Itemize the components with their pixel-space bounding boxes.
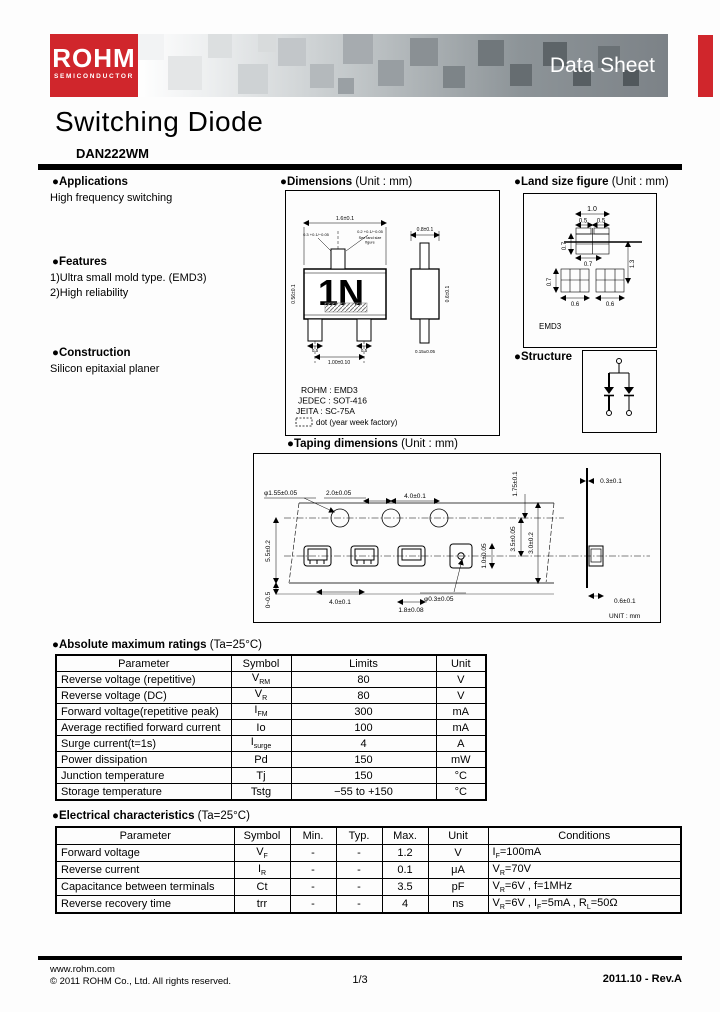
table-cell: Surge current(t=1s) [56, 736, 231, 752]
dim-label: 1.3 [630, 259, 636, 268]
structure-heading: ●Structure [514, 351, 572, 363]
abs-max-heading: ●Absolute maximum ratings (Ta=25°C) [52, 639, 262, 651]
red-accent-bar [698, 35, 713, 97]
dot-note: dot (year week factory) [316, 418, 398, 427]
dimensions-heading: ●Dimensions (Unit : mm) [280, 176, 412, 188]
land-pattern-drawing: 1.0 0.5 0.5 0.7 1.3 0.7 0.7 0.6 0.6 EMD3 [524, 194, 656, 347]
applications-heading: ●Applications [52, 176, 128, 188]
banner-square [343, 34, 373, 64]
dim-label: 0.6 [606, 302, 615, 308]
column-header: Min. [290, 827, 336, 845]
table-cell: VR=70V [488, 862, 681, 879]
unit-note: UNIT : mm [609, 613, 640, 620]
table-row: Reverse voltage (DC)VR80V [56, 688, 486, 704]
banner-square [138, 34, 164, 60]
table-cell: A [436, 736, 486, 752]
dim-label: 1.8±0.08 [398, 607, 424, 614]
dim-label: 0.6±0.1 [614, 598, 636, 605]
table-cell: ns [428, 896, 488, 914]
diode-symbol [604, 387, 614, 394]
dimensions-box: 1N 1.6±0.1 0.3 +0.1/−0.05 [285, 190, 500, 436]
dim-note: See land size [359, 236, 382, 240]
dim-label: 0.5 [312, 348, 319, 353]
column-header: Conditions [488, 827, 681, 845]
land-dim-lines [556, 214, 628, 298]
table-cell: - [336, 845, 382, 862]
table-cell: VF [234, 845, 290, 862]
column-header: Parameter [56, 827, 234, 845]
dot-legend-swatch [296, 418, 312, 426]
dim-label: 0.7 [547, 277, 553, 286]
table-cell: 150 [291, 752, 436, 768]
table-cell: trr [234, 896, 290, 914]
dim-label: 4.0±0.1 [404, 493, 426, 500]
banner-square [410, 38, 438, 66]
table-cell: IR [234, 862, 290, 879]
column-header: Limits [291, 655, 436, 672]
component-pocket [304, 546, 331, 566]
footer-rule [38, 956, 682, 960]
dim-label: 2.0±0.05 [326, 490, 352, 497]
table-row: Reverse currentIR--0.1μAVR=70V [56, 862, 681, 879]
rohm-logo: ROHM SEMICONDUCTOR [50, 34, 138, 97]
table-cell: V [436, 672, 486, 688]
feature-item: 1)Ultra small mold type. (EMD3) [50, 272, 206, 284]
package-front-view: 1N [304, 231, 386, 363]
table-cell: 3.5 [382, 879, 428, 896]
dim-label: 0.3 +0.1/−0.05 [303, 232, 330, 237]
table-cell: pF [428, 879, 488, 896]
table-cell: Capacitance between terminals [56, 879, 234, 896]
elec-char-table: ParameterSymbolMin.Typ.Max.UnitCondition… [55, 826, 682, 914]
table-cell: Average rectified forward current [56, 720, 231, 736]
column-header: Parameter [56, 655, 231, 672]
table-cell: Io [231, 720, 291, 736]
table-cell: μA [428, 862, 488, 879]
table-cell: - [290, 862, 336, 879]
structure-schematic [583, 351, 656, 432]
table-row: Capacitance between terminalsCt--3.5pFVR… [56, 879, 681, 896]
table-row: Power dissipationPd150mW [56, 752, 486, 768]
dim-label: 0.7 [584, 262, 593, 268]
dim-label: 0.8±0.1 [417, 227, 434, 233]
table-cell: Reverse voltage (DC) [56, 688, 231, 704]
dim-label: 0.15±0.05 [415, 349, 435, 354]
column-header: Symbol [231, 655, 291, 672]
features-heading: ●Features [52, 256, 107, 268]
table-cell: V [428, 845, 488, 862]
tape-side-view [587, 468, 603, 588]
table-row: Average rectified forward currentIo100mA [56, 720, 486, 736]
taping-drawing: φ1.55±0.05 2.0±0.05 4.0±0.1 1.75±0.1 0.3… [254, 454, 660, 622]
table-cell: mA [436, 704, 486, 720]
column-header: Unit [436, 655, 486, 672]
table-cell: °C [436, 768, 486, 784]
applications-text: High frequency switching [50, 192, 172, 204]
table-cell: VRM [231, 672, 291, 688]
dim-label: 1.00±0.10 [328, 360, 350, 366]
header-banner: Data Sheet [138, 34, 668, 97]
column-header: Max. [382, 827, 428, 845]
table-row: Storage temperatureTstg−55 to +150°C [56, 784, 486, 801]
elec-char-heading: ●Electrical characteristics (Ta=25°C) [52, 810, 250, 822]
table-cell: Forward voltage(repetitive peak) [56, 704, 231, 720]
dim-label: 1.0 [587, 206, 597, 213]
standard-name: JEDEC : SOT-416 [298, 396, 367, 406]
table-cell: - [336, 862, 382, 879]
banner-square [310, 64, 334, 88]
banner-square [278, 38, 306, 66]
part-number: DAN222WM [76, 146, 149, 161]
table-row: Junction temperatureTj150°C [56, 768, 486, 784]
table-cell: - [290, 879, 336, 896]
revision-label: 2011.10 - Rev.A [482, 973, 682, 985]
dim-label: φ0.3±0.05 [424, 596, 454, 603]
datasheet-banner-title: Data Sheet [550, 54, 655, 78]
table-cell: Reverse current [56, 862, 234, 879]
land-figure-box: 1.0 0.5 0.5 0.7 1.3 0.7 0.7 0.6 0.6 EMD3 [523, 193, 657, 348]
table-cell: 100 [291, 720, 436, 736]
table-cell: Tstg [231, 784, 291, 801]
package-drawing: 1N 1.6±0.1 0.3 +0.1/−0.05 [286, 191, 499, 435]
page-title: Switching Diode [55, 106, 263, 138]
banner-square [378, 60, 404, 86]
taping-box: φ1.55±0.05 2.0±0.05 4.0±0.1 1.75±0.1 0.3… [253, 453, 661, 623]
dim-label: 0.2 +0.1/−0.05 [357, 229, 384, 234]
table-cell: Reverse voltage (repetitive) [56, 672, 231, 688]
table-cell: Tj [231, 768, 291, 784]
dim-label: 0.5 [361, 348, 368, 353]
table-cell: 150 [291, 768, 436, 784]
rohm-logo-text: ROHM [50, 44, 138, 72]
table-cell: VR=6V , IF=5mA , RL=50Ω [488, 896, 681, 914]
marking-dot-area [325, 303, 367, 312]
table-cell: - [336, 879, 382, 896]
table-cell: Pd [231, 752, 291, 768]
table-row: Surge current(t=1s)Isurge4A [56, 736, 486, 752]
page-number: 1/3 [330, 974, 390, 986]
footer-url: www.rohm.com [50, 964, 115, 975]
table-cell: IF=100mA [488, 845, 681, 862]
dim-label: φ1.55±0.05 [264, 490, 297, 497]
table-cell: - [336, 896, 382, 914]
table-row: Reverse voltage (repetitive)VRM80V [56, 672, 486, 688]
table-cell: 4 [291, 736, 436, 752]
table-cell: Ct [234, 879, 290, 896]
dim-label: 0.6 [571, 302, 580, 308]
table-cell: Junction temperature [56, 768, 231, 784]
dim-label: 0.7 [562, 241, 568, 250]
banner-square [168, 56, 202, 90]
construction-heading: ●Construction [52, 347, 131, 359]
column-header: Typ. [336, 827, 382, 845]
standard-name: ROHM : EMD3 [301, 385, 358, 395]
table-cell: Reverse recovery time [56, 896, 234, 914]
dim-label: 0~0.5 [265, 591, 272, 608]
dim-label: 3.5±0.05 [510, 526, 517, 552]
dim-label: 5.5±0.2 [265, 540, 272, 562]
taping-heading: ●Taping dimensions (Unit : mm) [287, 438, 458, 450]
table-cell: IFM [231, 704, 291, 720]
abs-max-table: ParameterSymbolLimitsUnit Reverse voltag… [55, 654, 487, 801]
banner-square [510, 64, 532, 86]
diode-symbol [624, 387, 634, 394]
table-cell: 4 [382, 896, 428, 914]
table-cell: 80 [291, 672, 436, 688]
construction-text: Silicon epitaxial planer [50, 363, 159, 375]
dim-label: 0.6±0.1 [445, 285, 451, 302]
table-cell: 80 [291, 688, 436, 704]
table-cell: VR [231, 688, 291, 704]
table-cell: Forward voltage [56, 845, 234, 862]
banner-square [258, 34, 276, 52]
column-header: Symbol [234, 827, 290, 845]
feature-item: 2)High reliability [50, 287, 128, 299]
dim-label: 1.0±0.05 [481, 543, 488, 569]
land-pads [561, 228, 624, 292]
footer-copyright: © 2011 ROHM Co., Ltd. All rights reserve… [50, 976, 231, 987]
table-cell: mA [436, 720, 486, 736]
table-cell: °C [436, 784, 486, 801]
banner-square [208, 34, 232, 58]
carrier-tape [276, 503, 650, 594]
title-rule [38, 164, 682, 170]
table-cell: 0.1 [382, 862, 428, 879]
land-figure-heading: ●Land size figure (Unit : mm) [514, 176, 669, 188]
standard-name: JEITA : SC-75A [296, 406, 355, 416]
column-header: Unit [428, 827, 488, 845]
structure-box [582, 350, 657, 433]
table-header-row: ParameterSymbolLimitsUnit [56, 655, 486, 672]
dim-label: 1.75±0.1 [512, 471, 519, 497]
dim-label: 0.56±0.1 [291, 284, 297, 304]
table-cell: - [290, 845, 336, 862]
table-cell: VR=6V , f=1MHz [488, 879, 681, 896]
table-cell: Power dissipation [56, 752, 231, 768]
table-row: Forward voltage(repetitive peak)IFM300mA [56, 704, 486, 720]
table-cell: 300 [291, 704, 436, 720]
table-cell: 1.2 [382, 845, 428, 862]
dim-label: 3.0±0.2 [528, 532, 535, 554]
banner-square [443, 66, 465, 88]
banner-square [238, 64, 268, 94]
dim-label: 4.0±0.1 [329, 599, 351, 606]
dim-label: 0.5 [579, 219, 588, 225]
rohm-logo-subtext: SEMICONDUCTOR [50, 73, 138, 80]
table-row: Forward voltageVF--1.2VIF=100mA [56, 845, 681, 862]
dim-note: figure [365, 241, 375, 245]
dim-label: 0.5 [597, 219, 606, 225]
dim-label: 0.3±0.1 [600, 478, 622, 485]
table-row: Reverse recovery timetrr--4nsVR=6V , IF=… [56, 896, 681, 914]
package-side-view [411, 231, 439, 343]
table-header-row: ParameterSymbolMin.Typ.Max.UnitCondition… [56, 827, 681, 845]
diode-circuit [604, 359, 634, 416]
table-cell: - [290, 896, 336, 914]
table-cell: V [436, 688, 486, 704]
table-cell: Storage temperature [56, 784, 231, 801]
banner-square [338, 78, 354, 94]
datasheet-page: ROHM SEMICONDUCTOR Data Sheet Switching … [0, 0, 720, 1012]
table-cell: mW [436, 752, 486, 768]
table-cell: −55 to +150 [291, 784, 436, 801]
dim-label: 1.6±0.1 [336, 216, 354, 222]
table-cell: Isurge [231, 736, 291, 752]
banner-square [478, 40, 504, 66]
package-name: EMD3 [539, 322, 562, 331]
